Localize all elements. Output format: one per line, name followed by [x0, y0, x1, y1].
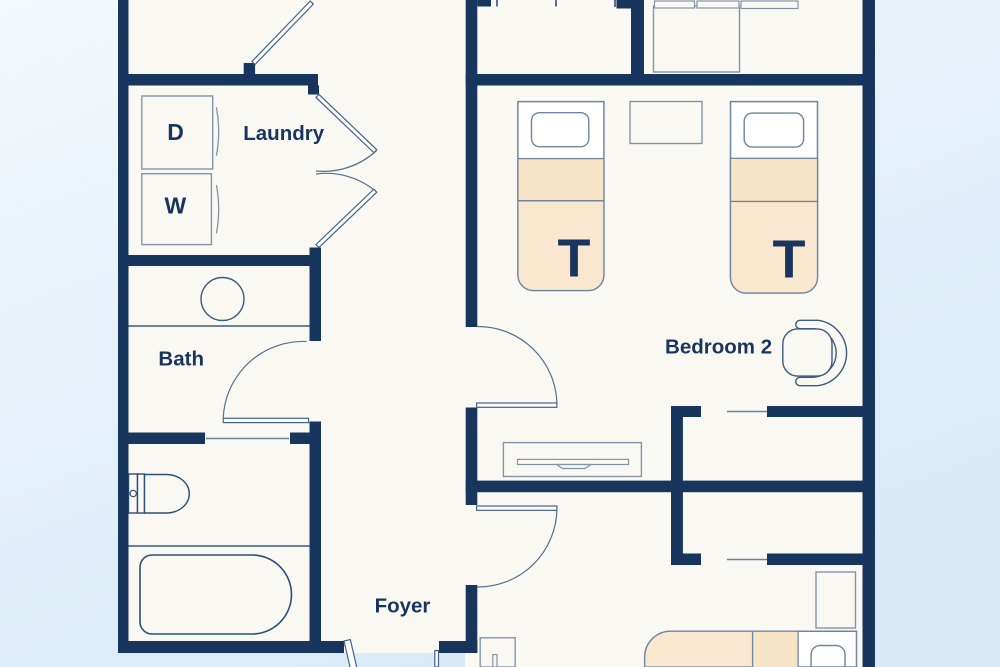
- svg-text:Bath: Bath: [158, 348, 204, 371]
- svg-text:T: T: [773, 230, 806, 290]
- svg-text:W: W: [164, 193, 186, 219]
- svg-text:T: T: [558, 228, 591, 288]
- svg-text:Foyer: Foyer: [375, 595, 431, 618]
- svg-text:D: D: [167, 119, 184, 145]
- svg-text:Laundry: Laundry: [243, 122, 324, 145]
- svg-text:Bedroom 2: Bedroom 2: [665, 336, 772, 359]
